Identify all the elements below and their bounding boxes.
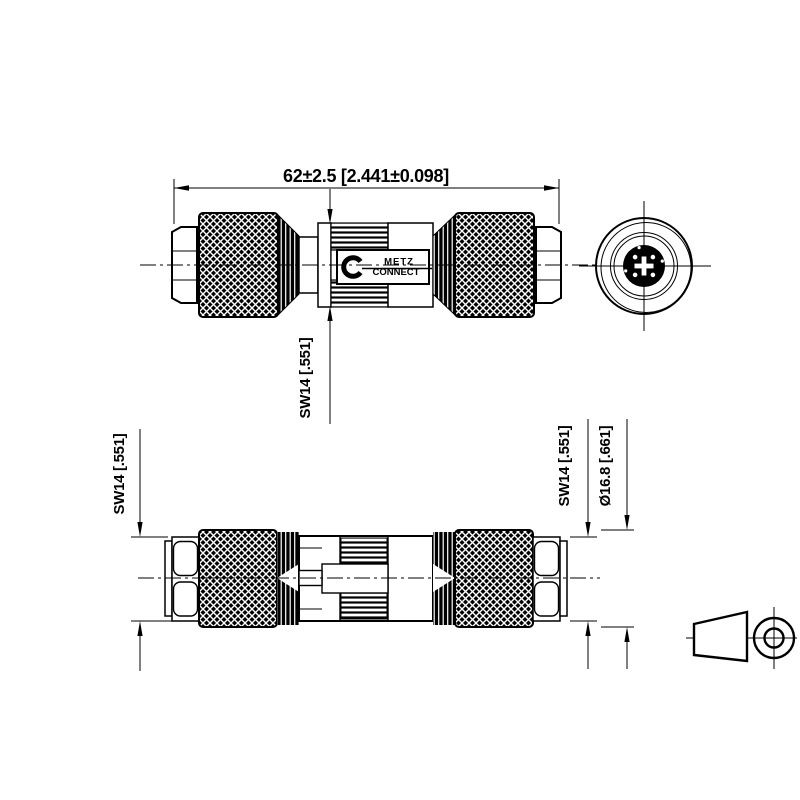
pin-socket xyxy=(633,273,638,278)
ribbed-band-upper xyxy=(331,223,388,250)
brand-label-plate: METZ CONNECT xyxy=(337,250,432,284)
hex-nut-right-rotated xyxy=(533,537,560,621)
pin-socket xyxy=(651,255,656,260)
pin-socket xyxy=(651,273,656,278)
projection-cone-icon xyxy=(694,612,747,661)
hex-nut-left-rotated xyxy=(172,537,199,621)
overall-length-label: 62±2.5 [2.441±0.098] xyxy=(283,166,449,186)
knurl-diameter-label: Ø16.8 [.661] xyxy=(597,425,614,506)
sw14-bottom-left-label: SW14 [.551] xyxy=(111,433,128,514)
side-view-bottom xyxy=(138,530,600,627)
brand-text-line1: METZ xyxy=(384,257,414,268)
first-angle-projection-symbol xyxy=(686,607,797,669)
pin-socket xyxy=(633,255,638,260)
side-view-top: METZ CONNECT xyxy=(140,213,596,317)
knurl-grip-left xyxy=(199,530,277,627)
sw14-bottom-right-label: SW14 [.551] xyxy=(556,425,573,506)
sw14-top-label: SW14 [.551] xyxy=(297,337,314,418)
end-view xyxy=(579,201,711,331)
ribbed-band-lower xyxy=(341,593,387,619)
ribbed-band-upper xyxy=(341,538,387,564)
technical-drawing: METZ CONNECT 62±2.5 [2.441±0.098] SW14 [… xyxy=(0,0,800,800)
drawing-canvas: METZ CONNECT 62±2.5 [2.441±0.098] SW14 [… xyxy=(0,0,800,800)
socket-face xyxy=(623,245,665,287)
dimension-knurl-diameter: Ø16.8 [.661] xyxy=(597,419,634,669)
knurl-grip-left xyxy=(199,213,278,317)
